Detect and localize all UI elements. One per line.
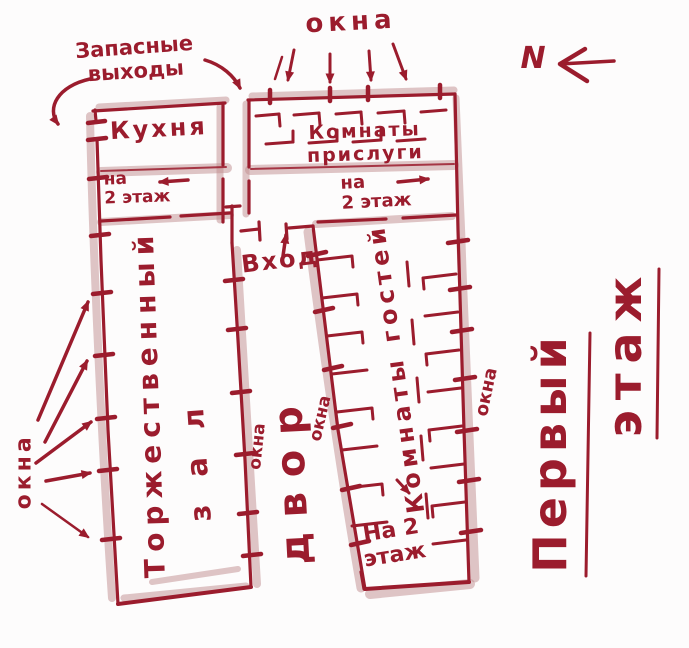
label-floor-title-word2: этаж [600,252,652,452]
north-arrow [560,49,614,81]
windows-top-arrows [275,44,406,82]
label-floor-title-word1: Первый [525,327,577,577]
windows-left-arrows [36,302,91,537]
label-servants-rooms: Комнаты прислуги [279,117,450,168]
label-windows-left: окна [13,421,38,521]
floorplan-sheet: Запасные выходы окна N Кухня на 2 этаж К… [0,0,689,648]
label-stairs-left: на 2 этаж [103,167,194,208]
label-north: N [508,42,558,76]
label-stairs-right: на 2 этаж [340,168,452,214]
label-windows-top: окна [295,5,406,40]
